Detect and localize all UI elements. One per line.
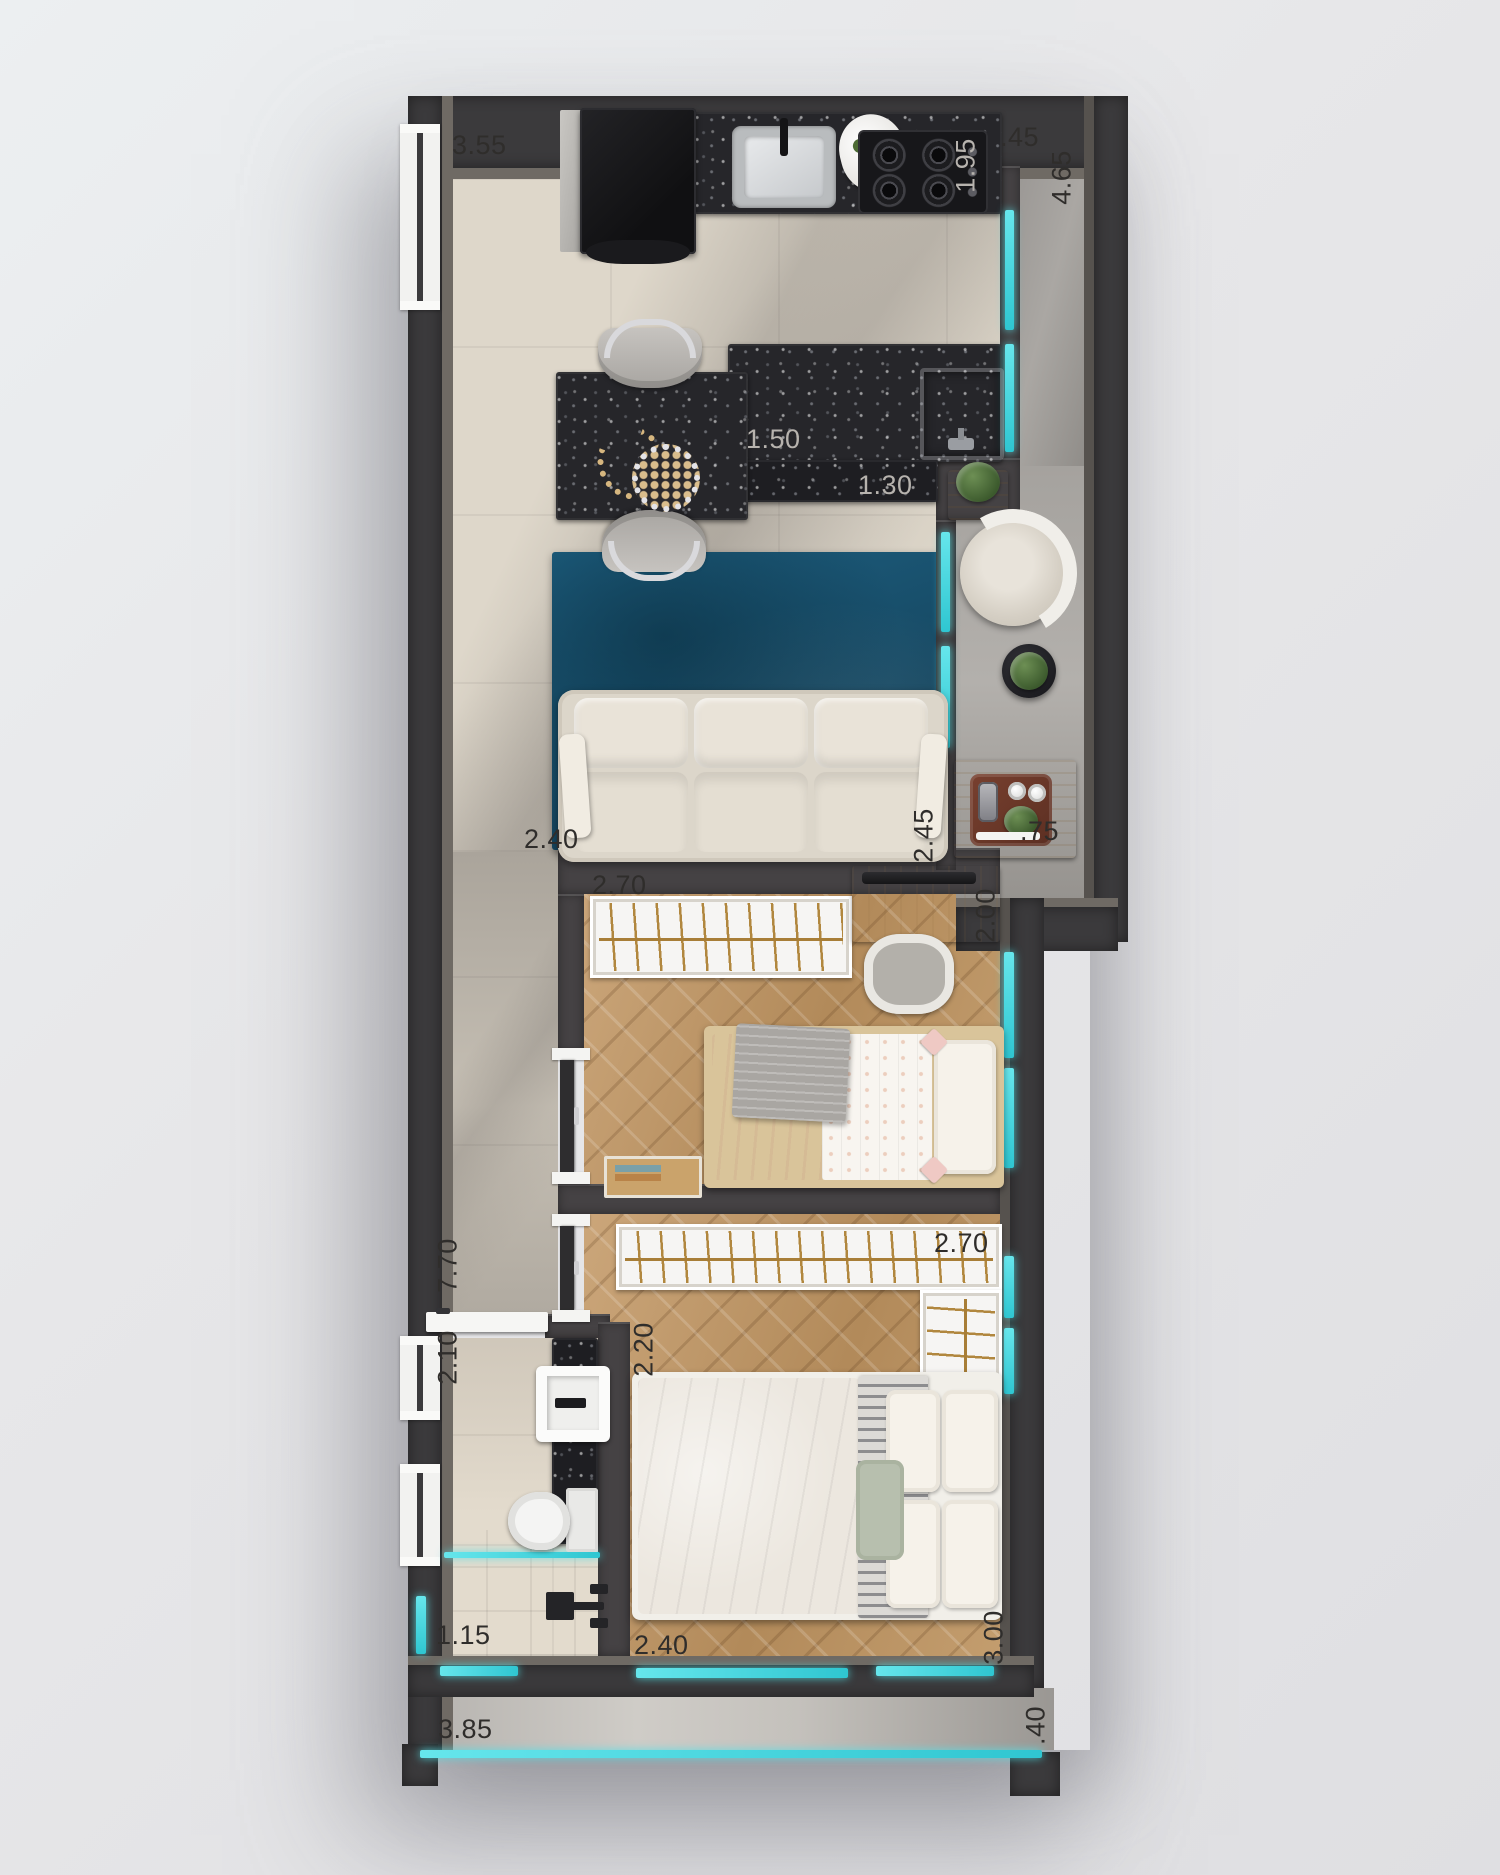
dim-terrace-length: 3.85 [438, 1714, 493, 1745]
window-sill-bedroom2-bottom-2 [876, 1666, 994, 1676]
window-glass-shower-left [416, 1596, 426, 1654]
dim-living-depth: 2.45 [909, 796, 940, 876]
sofa-seat-cushion [574, 772, 688, 852]
double-bed-pillow [942, 1500, 998, 1608]
dim-shower-width: 1.15 [436, 1620, 491, 1651]
window-bathroom-left-lower [400, 1464, 440, 1566]
shower-pipe [572, 1602, 604, 1610]
toilet-bowl [508, 1492, 570, 1550]
door-frame-bedroom2-top [552, 1214, 590, 1226]
window-kitchen-left [400, 124, 440, 310]
door-frame-bedroom1-top [552, 1048, 590, 1060]
wall-bedroom1-left [558, 894, 584, 1052]
dim-bathroom-width: 2.10 [433, 1318, 464, 1398]
dining-chair-south [602, 510, 706, 572]
apartment-floor-plan: 3.55 .45 1.95 4.65 1.50 1.30 2.40 2.45 .… [0, 0, 1500, 1875]
book-tray [604, 1156, 702, 1198]
double-bed-duvet [638, 1378, 860, 1614]
shower-mixer [546, 1592, 574, 1620]
decor-bead-disc [632, 444, 700, 512]
window-bedroom1-right-1 [1004, 952, 1014, 1058]
bathroom-faucet [555, 1398, 586, 1408]
kitchen-faucet [780, 118, 788, 156]
refrigerator-door [586, 240, 690, 264]
shower-valve-top [590, 1584, 608, 1594]
refrigerator [580, 108, 696, 254]
window-sill-bedroom2-bottom-1 [636, 1668, 848, 1678]
sofa-seat-cushion [694, 772, 808, 852]
wall-outer-right-upper [1084, 96, 1128, 942]
dim-island-length: 1.50 [746, 424, 801, 455]
window-bedroom2-right-2 [1004, 1328, 1014, 1394]
terrace-glass-rail [420, 1750, 1042, 1758]
sofa [558, 690, 948, 862]
glass-balcony-north-1 [1005, 210, 1014, 330]
plant-round-table [1010, 652, 1048, 690]
plant-kitchen-stool [956, 462, 1000, 502]
dim-bar-length: 1.30 [858, 470, 913, 501]
dim-bedroom1-closet: 2.70 [592, 870, 647, 901]
dim-counter-length: 1.95 [951, 126, 982, 206]
espresso-maker [978, 782, 998, 822]
closet-bedroom1 [590, 896, 852, 978]
single-bed-pillow [934, 1040, 996, 1174]
dim-living-width: 2.40 [524, 824, 579, 855]
hangers-bedroom1 [599, 903, 843, 971]
window-bedroom1-right-2 [1004, 1068, 1014, 1168]
sofa-back-cushion [694, 698, 808, 768]
window-bedroom2-right-1 [1004, 1256, 1014, 1318]
shower-valve-bottom [590, 1618, 608, 1628]
door-bedroom1 [560, 1060, 574, 1172]
decor-beads [598, 420, 698, 508]
glass-balcony-north-2 [1005, 344, 1014, 452]
dim-bedroom2-closet: 2.70 [934, 1228, 989, 1259]
papasan-chair [960, 520, 1066, 626]
dim-bedroom2-depth: 3.00 [979, 1598, 1010, 1678]
dim-kitchen-width: 3.55 [452, 130, 507, 161]
coffee-cup [1008, 782, 1026, 800]
toilet-tank [566, 1488, 598, 1552]
door-bedroom2 [560, 1226, 574, 1310]
cabinet-panel-left [560, 110, 582, 252]
dim-bedroom2-window: 2.40 [634, 1630, 689, 1661]
dim-balcony-width: .75 [1020, 816, 1059, 847]
bathroom-sink [536, 1366, 610, 1442]
dim-bedroom1-depth: 2.00 [971, 876, 1002, 956]
double-bed-accent-pillow [856, 1460, 904, 1560]
double-bed-pillow [942, 1390, 998, 1492]
sofa-back-cushion [814, 698, 928, 768]
floor-terrace [412, 1688, 1054, 1750]
door-frame-bedroom1-bottom [552, 1172, 590, 1184]
sofa-back-cushion [574, 698, 688, 768]
island-faucet [948, 438, 974, 450]
shower-glass-divider [444, 1552, 600, 1558]
single-bed-throw [732, 1023, 851, 1123]
dim-terrace-depth: .40 [1021, 1686, 1052, 1766]
dim-wall-return: .45 [1000, 122, 1039, 153]
dim-apartment-length: 7.70 [433, 1226, 464, 1306]
coffee-cup [1028, 784, 1046, 802]
desk-chair [864, 934, 954, 1014]
dining-chair-north [598, 328, 702, 388]
window-sill-shower-bottom [440, 1666, 518, 1676]
dim-balcony-length: 4.65 [1047, 138, 1078, 218]
kitchen-sink [732, 126, 836, 208]
door-frame-bedroom2-bottom [552, 1310, 590, 1322]
dim-bedroom2-entry: 2.20 [629, 1310, 660, 1390]
